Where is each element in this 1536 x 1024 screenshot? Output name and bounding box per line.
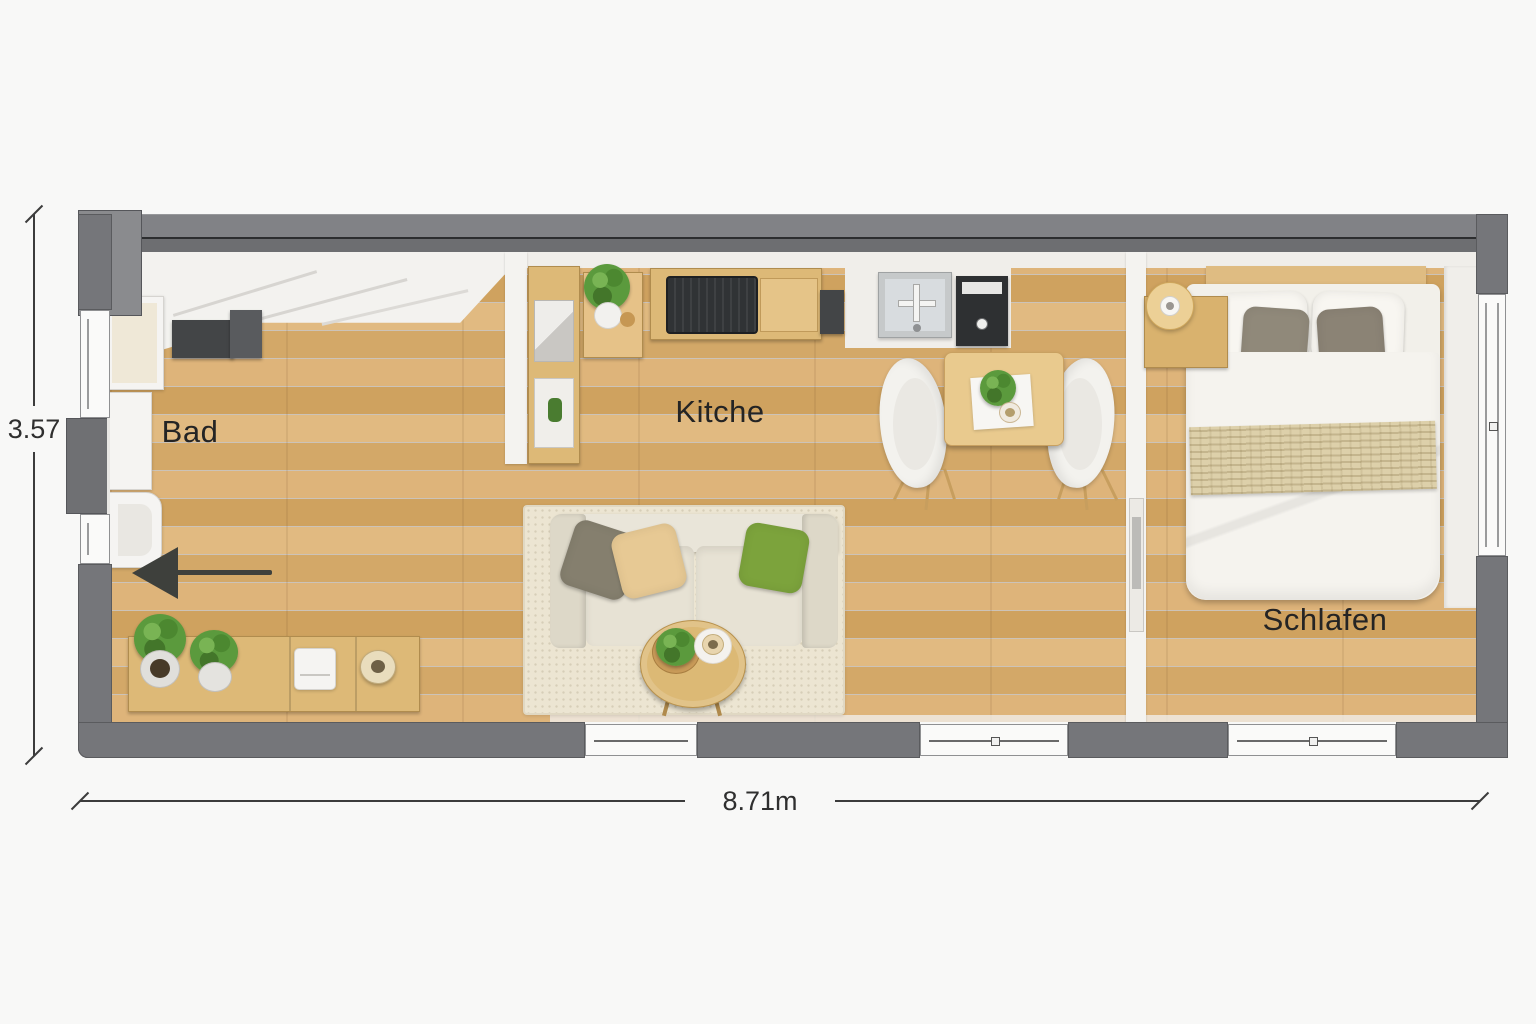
dining-chair-right-seat [1058,378,1102,470]
hat-crown [371,660,385,673]
window-handle [1489,422,1498,431]
utensil-holder [820,290,844,334]
kitchen-cabinet-mirror [534,300,574,362]
window-bottom-1 [585,724,697,756]
plant-pot [198,662,232,692]
coffee-machine-tray [962,282,1002,294]
wall-top [90,214,1508,252]
bathroom-dark-cabinet [172,320,234,358]
dimension-line-vertical-upper [33,214,35,406]
sofa-armrest-right [802,514,838,648]
wall-bottom-mid1 [697,722,920,758]
toilet-seat [118,504,152,556]
window-frame-line [1485,303,1487,547]
entry-door-left [66,418,110,514]
wood-ball [620,312,635,327]
wall-bottom-mid2 [1068,722,1228,758]
dimension-height-label: 3.57 [0,414,68,445]
floor-plan: Bad Kitche Schlafen 3.57 8.71m [0,0,1536,1024]
plant-pot [594,302,622,329]
bed-blanket [1189,421,1437,495]
window-bottom-3 [1228,724,1396,756]
white-box-device [294,648,336,690]
plant-soil [150,659,170,678]
window-handle [1309,737,1318,746]
coffee-machine-dial [976,318,988,330]
coffee-cup-inner [1005,408,1015,417]
cutting-board [760,278,818,332]
dimension-line-horizontal-right [835,800,1480,802]
window-left-upper [80,310,110,418]
room-label-kitchen: Kitche [650,394,790,430]
window-frame-line [87,523,89,555]
white-box-lid-line [300,674,330,676]
wall-right-upper [1476,214,1508,294]
wall-bottom-right [1396,722,1508,758]
entrance-arrow-shaft [176,570,272,575]
dimension-line-vertical-lower [33,452,35,756]
green-bottle [548,398,562,422]
sofa-pillow-green [737,521,811,595]
window-bottom-2 [920,724,1068,756]
interior-wall-face-bottom [550,715,1478,722]
sink-drain [913,324,921,332]
wall-left-upper [78,214,112,310]
plant-icon [980,370,1016,406]
room-label-schlafen: Schlafen [1250,602,1400,638]
partition-bath-kitchen [505,252,527,464]
hat-crown [708,640,718,649]
wall-bottom-left [78,722,585,758]
bathroom-dark-cabinet-step [230,310,262,358]
cooktop-icon [666,276,758,334]
window-left-lower [80,514,110,564]
plant-icon [656,628,696,666]
window-frame-line [594,740,688,742]
faucet-icon [913,284,920,322]
room-label-bad: Bad [140,414,240,450]
bedroom-door-recess [1132,517,1141,589]
bedside-lamp-finial [1166,302,1174,310]
dimension-width-label: 8.71m [690,786,830,817]
partition-bedroom [1126,252,1146,722]
window-frame-line [87,319,89,409]
dimension-line-horizontal-left [80,800,685,802]
window-right-bedroom [1478,294,1506,556]
dining-chair-left-seat [893,378,937,470]
window-handle [991,737,1000,746]
bedroom-wall-face-right [1444,266,1478,608]
